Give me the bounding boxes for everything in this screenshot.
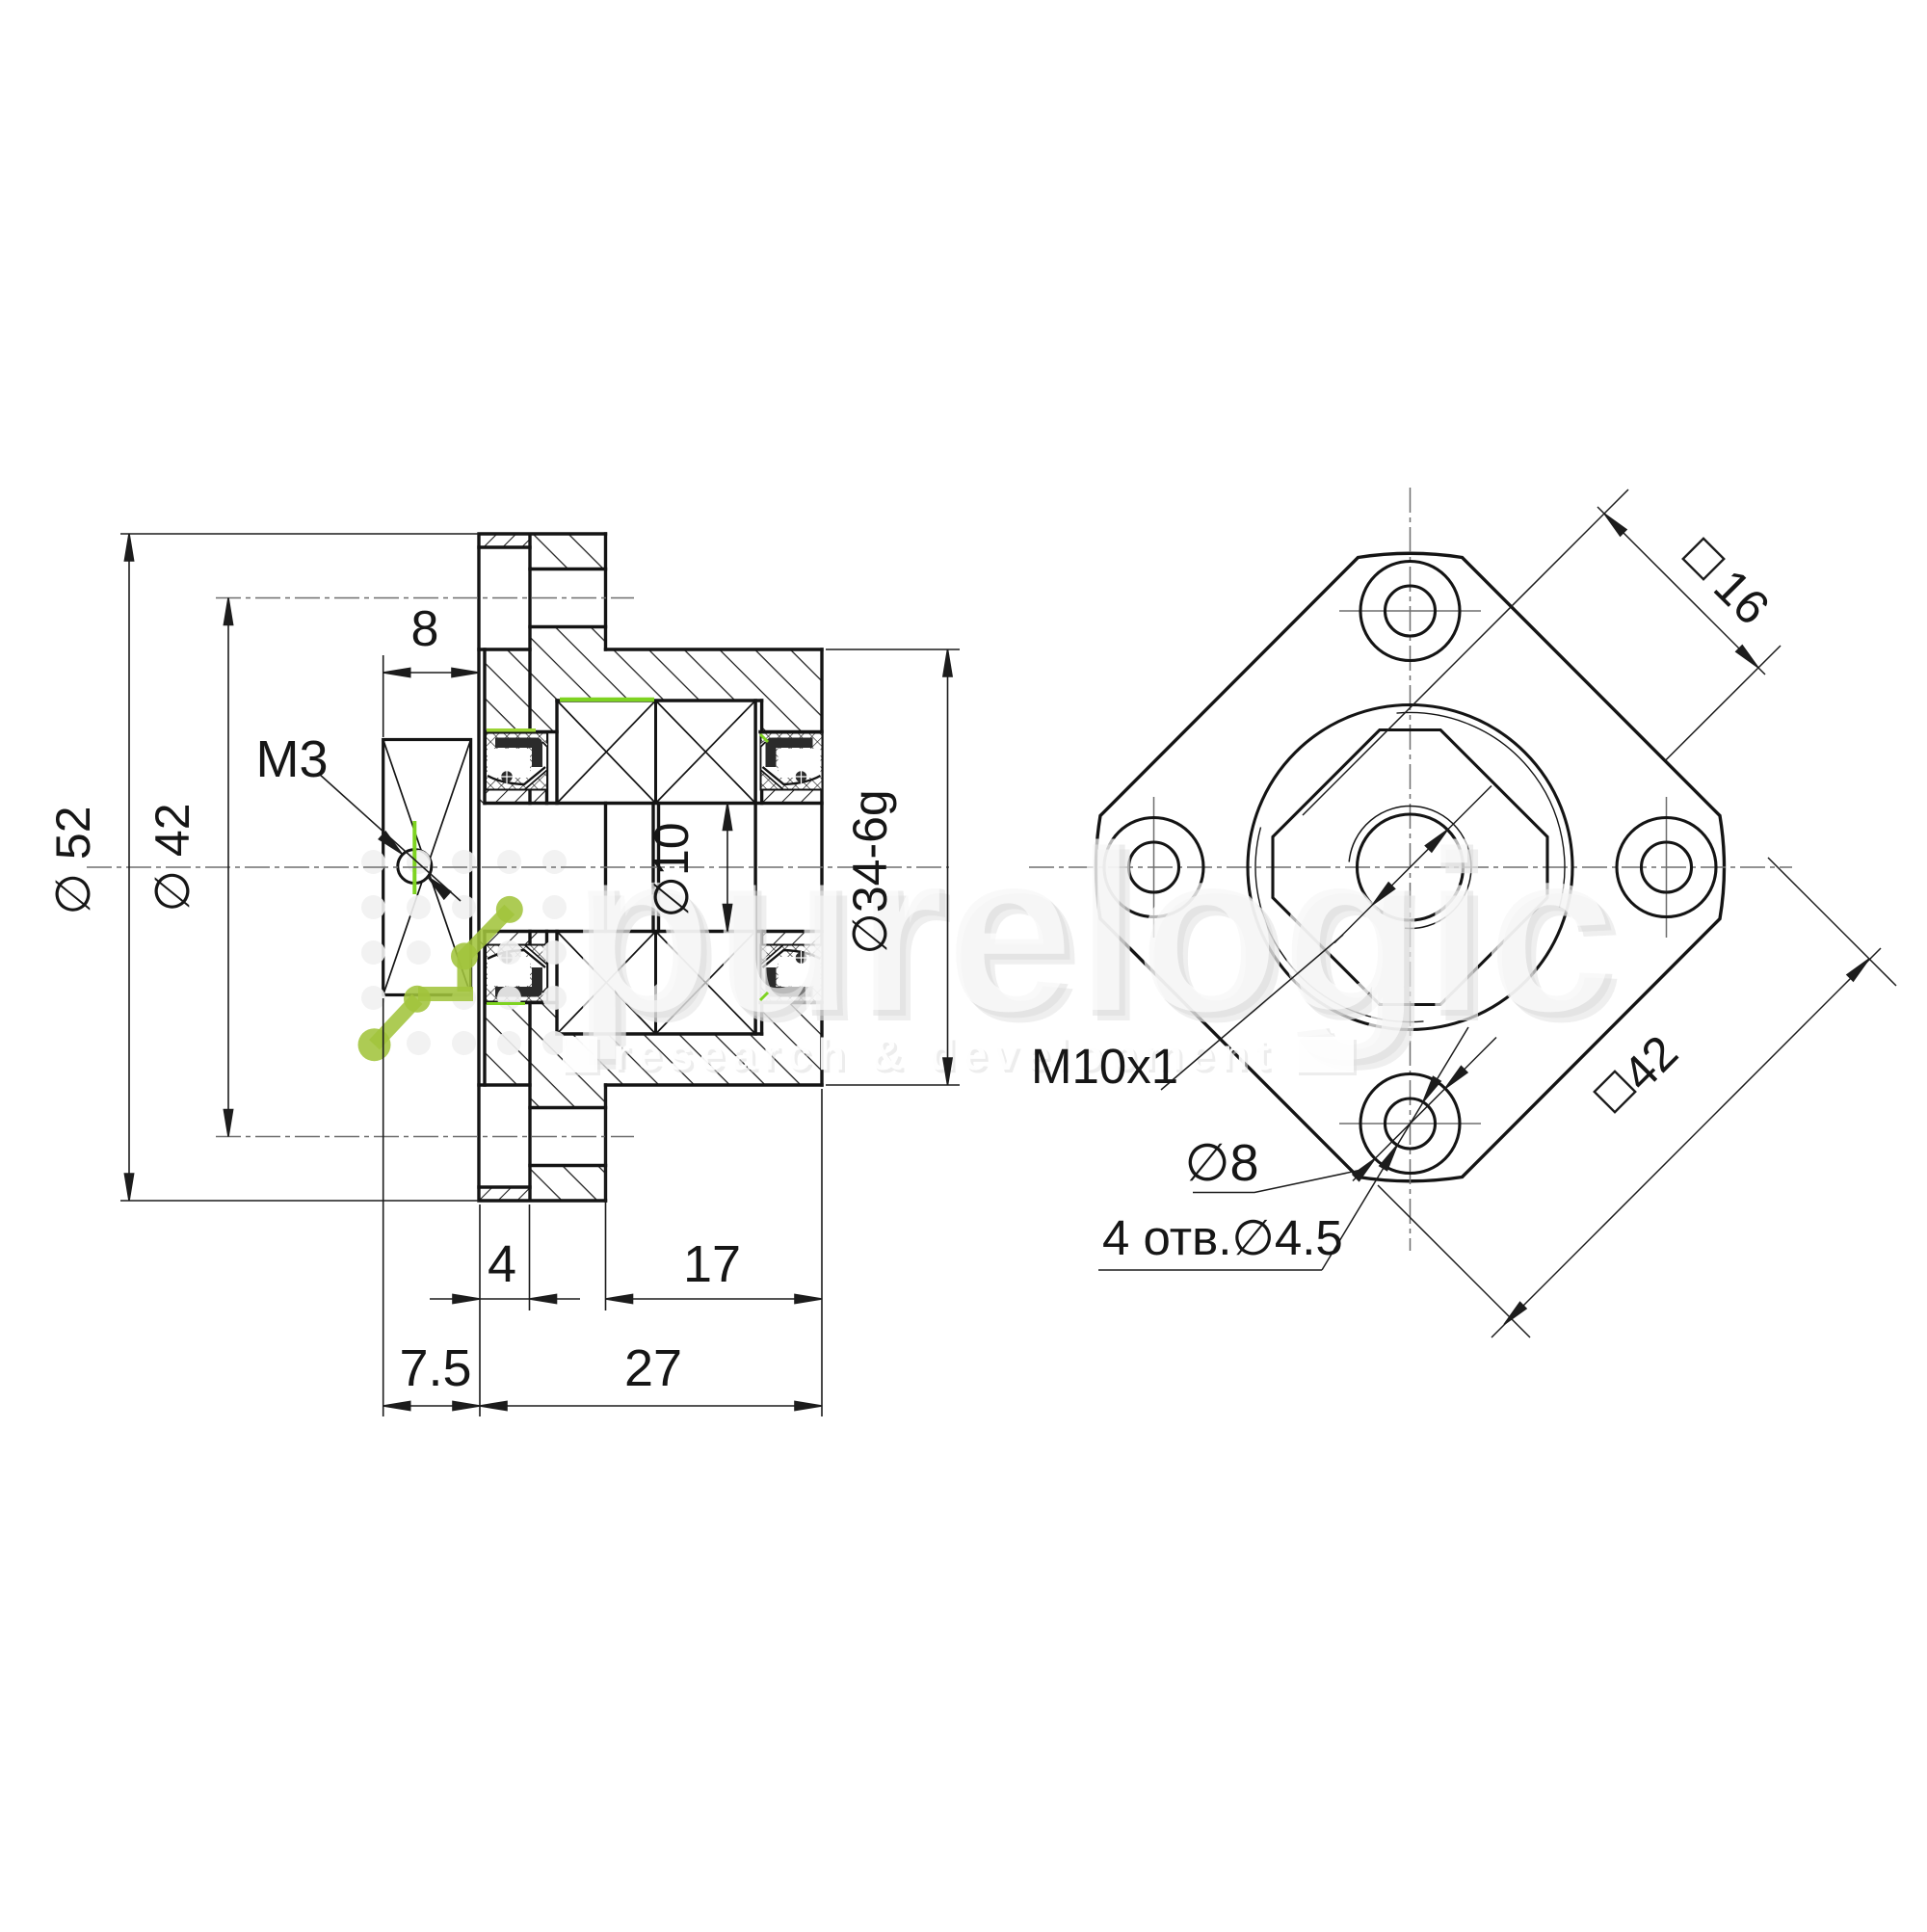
svg-text:∅ 42: ∅ 42 (145, 803, 199, 912)
svg-text:M3: M3 (255, 730, 328, 788)
svg-text:4 отв.∅4.5: 4 отв.∅4.5 (1102, 1210, 1343, 1265)
svg-text:17: 17 (683, 1235, 741, 1293)
svg-text:M10x1: M10x1 (1031, 1039, 1178, 1094)
svg-text:4: 4 (488, 1235, 516, 1293)
svg-text:27: 27 (624, 1339, 682, 1397)
svg-text:∅ 52: ∅ 52 (46, 806, 100, 914)
svg-text:∅34-6g: ∅34-6g (843, 789, 897, 954)
svg-text:∅10: ∅10 (645, 822, 699, 917)
svg-text:∅8: ∅8 (1184, 1134, 1258, 1192)
svg-text:purelogic: purelogic (567, 796, 1612, 1060)
svg-text:7.5: 7.5 (399, 1339, 471, 1397)
svg-text:8: 8 (411, 601, 439, 657)
